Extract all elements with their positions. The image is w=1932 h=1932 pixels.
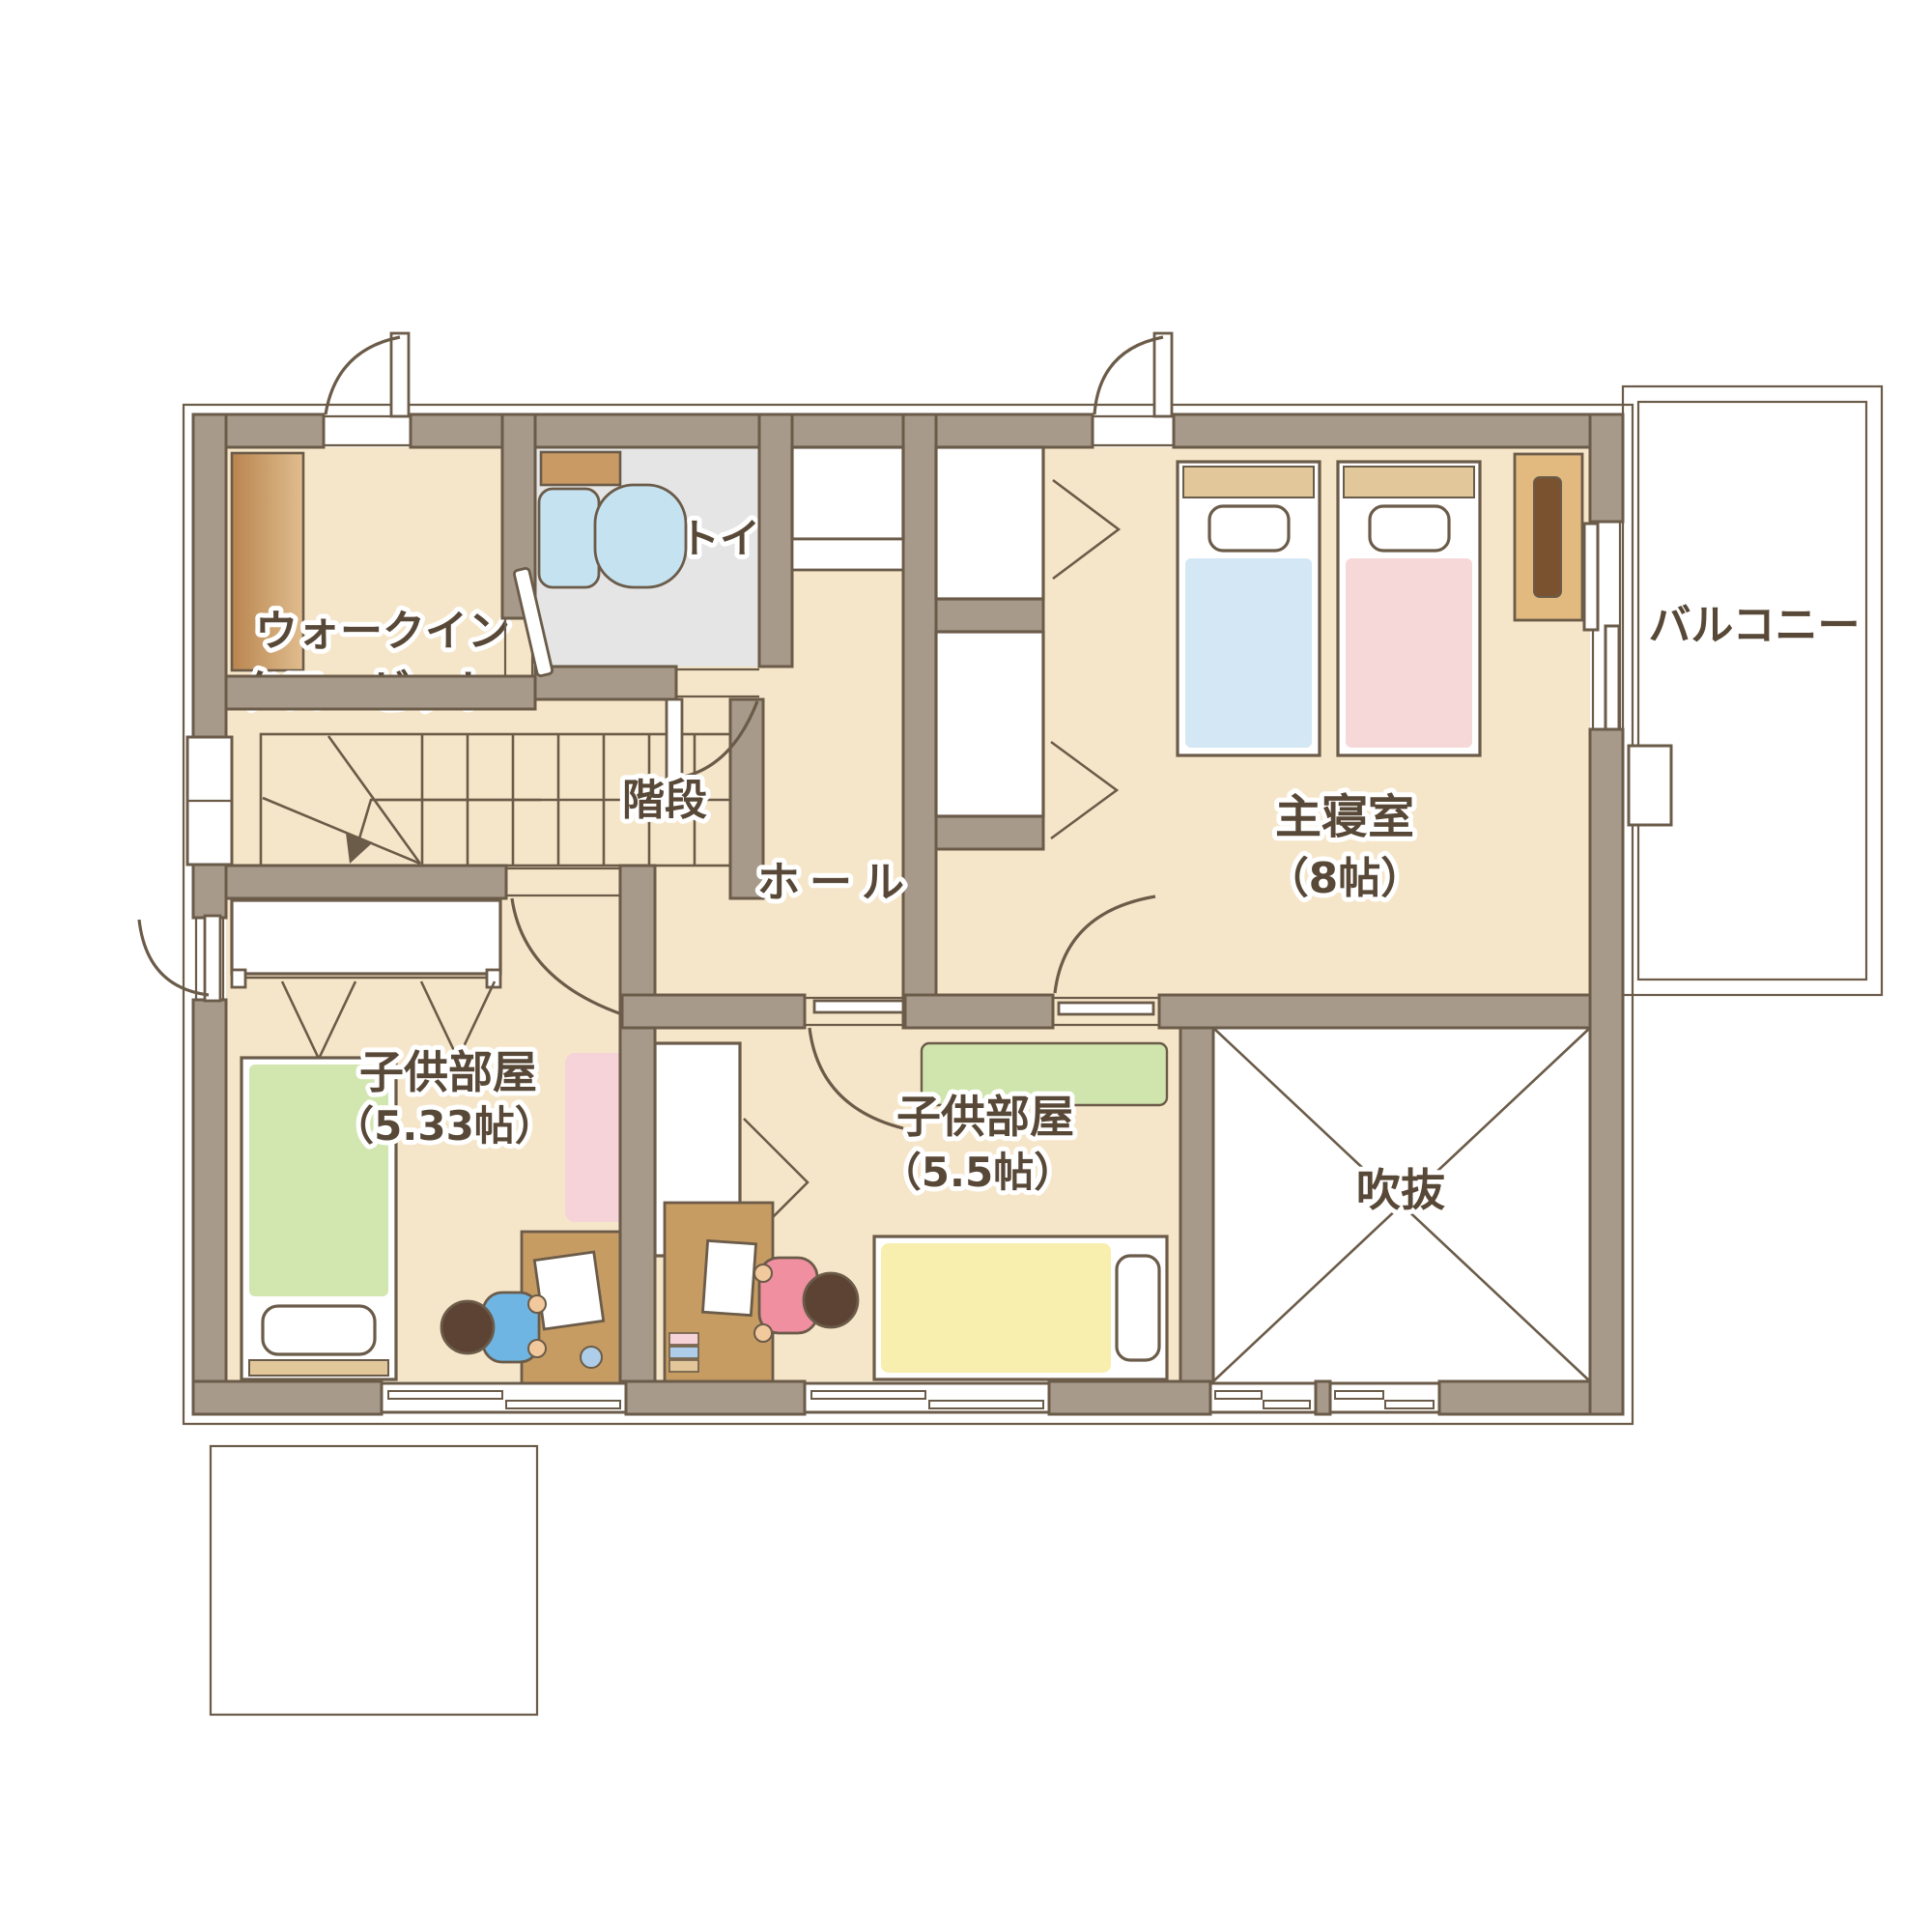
wall-segment [1316,1381,1330,1414]
toilet-bowl-icon [595,485,686,587]
bed-pink [1338,462,1480,755]
wall-segment [759,414,792,667]
door-arc [1094,337,1163,414]
door-arc [326,337,400,414]
sliding-door-panel [1584,524,1598,630]
bed-blue [1178,462,1320,755]
child-hand [528,1295,546,1313]
book [669,1347,698,1358]
child-hand [754,1324,772,1342]
hall-label: ホール [757,858,914,907]
window-sash [1264,1401,1310,1408]
bed-pillow [1370,506,1449,551]
paper [534,1252,603,1329]
wall-segment [1159,995,1590,1028]
ball-icon [581,1347,602,1368]
wall-segment [1180,1028,1213,1381]
hall-closet-opening [792,539,903,570]
bedroom-closet-lower [936,632,1043,816]
wall-segment [626,1381,805,1414]
bedroom-closet-upper [936,447,1043,599]
kids-right-label: 子供部屋 [896,1091,1074,1143]
wall-segment [1049,1381,1210,1414]
book [669,1333,698,1345]
balcony-step-box [1629,746,1671,825]
child-head [441,1301,494,1353]
child-hand [528,1340,546,1357]
wic-label-line1: ウォークイン [255,607,510,656]
master-bedroom-label: 主寝室 [1275,790,1414,844]
bed-headboard [249,1360,388,1376]
kids-left-size: （5.33帖） [333,1102,555,1150]
balcony: バルコニー [1623,386,1882,995]
toilet-shelf [541,452,620,485]
door-leaf [391,333,409,416]
door-leaf [814,1001,903,1012]
bed-blanket-blue [1185,558,1312,748]
kids-right-size: （5.5帖） [881,1149,1074,1196]
window-sash [1215,1391,1262,1399]
bed-blanket-pink [1346,558,1472,748]
door-leaf [205,916,220,1001]
desk-right [665,1203,773,1383]
kids-left-label: 子供部屋 [359,1046,537,1098]
floor-plan-canvas: バルコニー ウォークイン クローゼット トイレ [0,0,1932,1932]
wall-segment [193,1000,226,1414]
wall-segment [905,995,1053,1028]
bed-pillow [1209,506,1289,551]
wall-segment [193,414,226,739]
lower-roof-outline [211,1446,537,1715]
stairs-label: 階段 [622,776,707,825]
wall-segment [193,863,226,918]
closet-box [232,900,500,974]
bed-blanket-yellow [881,1243,1111,1373]
window-sash [1385,1401,1434,1408]
wall-segment [226,676,535,709]
wall-segment [1174,414,1623,447]
closet-pole-end [232,970,245,987]
void-label: 吹抜 [1356,1164,1445,1216]
wall-segment [622,995,805,1028]
toilet-tank [539,489,599,587]
balcony-railing-outer [1623,386,1882,995]
bed-blanket-green [249,1065,388,1296]
wall-segment [620,866,655,1381]
window-sash [811,1391,925,1399]
sliding-door-panel [1605,626,1619,729]
tv-board [1515,454,1582,620]
wall-segment [226,866,506,898]
bed-headboard [1344,467,1474,497]
balcony-label: バルコニー [1648,601,1860,650]
child-blue [441,1293,546,1362]
wall-segment [903,414,936,1028]
window-sash [388,1391,502,1399]
bed-yellow [874,1236,1167,1379]
door-leaf [1059,1003,1153,1014]
wall-segment [193,1381,382,1414]
paper [702,1240,755,1315]
bed-pillow [263,1306,375,1354]
door-arc [139,920,209,995]
child-head [804,1273,858,1327]
child-hand [754,1264,772,1282]
wall-segment [535,667,676,699]
door-leaf [1154,333,1172,416]
bed-headboard [1183,467,1314,497]
tv-icon [1534,477,1561,597]
hall-closet [792,447,903,539]
wall-segment [936,816,1043,849]
wall-segment [1590,729,1623,1414]
door-leaf [667,699,682,781]
window-sash [929,1401,1043,1408]
rug-pink [565,1053,628,1222]
floor-plan-page: バルコニー ウォークイン クローゼット トイレ [0,0,1932,1932]
bed-pillow [1117,1256,1159,1360]
balcony-floor [1638,402,1866,980]
master-bedroom-size: （8帖） [1266,854,1424,903]
wall-segment [936,599,1043,632]
window-sash [506,1401,620,1408]
wall-segment [1590,414,1623,522]
window-sash [1335,1391,1383,1399]
book [669,1360,698,1372]
